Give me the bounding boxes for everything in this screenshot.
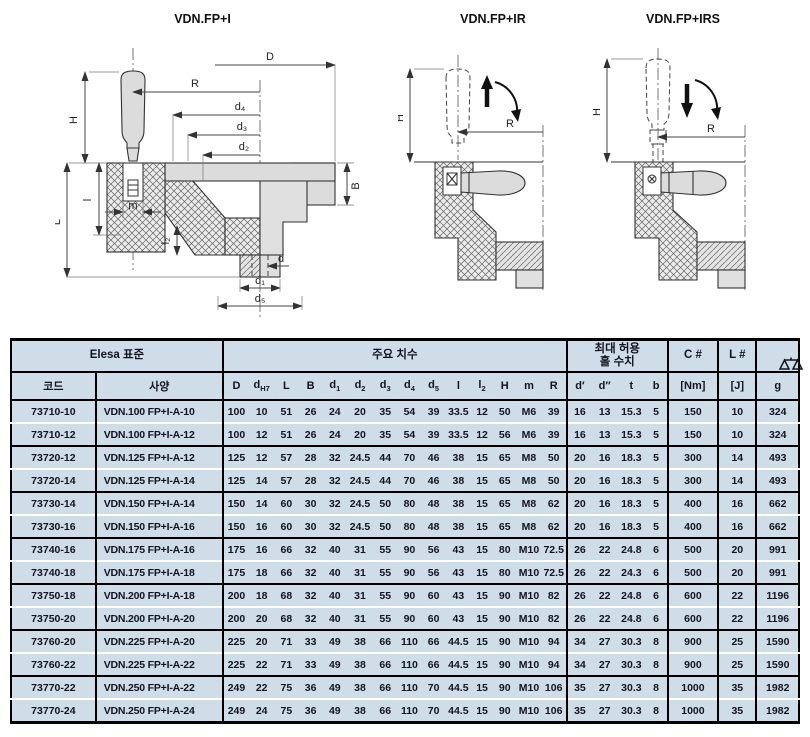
cell-B: 33: [299, 653, 323, 676]
cell-d3: 35: [373, 400, 397, 423]
cell-d5: 39: [422, 423, 446, 446]
cell-H: 90: [493, 630, 516, 653]
rotation-arc: [695, 80, 717, 112]
col-l2: l2: [471, 372, 493, 400]
cell-d2: 38: [347, 676, 373, 699]
cell-J: 35: [718, 699, 756, 723]
cell-d-prime: 20: [567, 469, 592, 492]
cell-J: 22: [718, 607, 756, 630]
cell-l2: 15: [471, 584, 493, 607]
cell-g: 1196: [756, 607, 799, 630]
hub-tube: [516, 270, 543, 288]
cell-d3: 44: [373, 469, 397, 492]
cell-d3: 55: [373, 538, 397, 561]
rotation-arc: [495, 82, 517, 114]
cell-R: 94: [542, 653, 567, 676]
cell-b: 5: [646, 400, 668, 423]
table-row: 73740-18VDN.175 FP+I-A-18175186632403155…: [11, 561, 799, 584]
cell-t: 18.3: [617, 492, 645, 515]
col-m: m: [516, 372, 541, 400]
cell-dH7: 16: [249, 515, 274, 538]
cell-d5: 39: [422, 400, 446, 423]
cell-B: 26: [299, 423, 323, 446]
col-dH7: dH7: [249, 372, 274, 400]
cell-d5: 46: [422, 446, 446, 469]
cell-l2: 15: [471, 630, 493, 653]
cell-dH7: 18: [249, 561, 274, 584]
cell-L: 75: [274, 676, 298, 699]
cell-d-dprime: 16: [592, 492, 617, 515]
cell-g: 493: [756, 469, 799, 492]
cell-d2: 31: [347, 561, 373, 584]
cell-t: 30.3: [617, 699, 645, 723]
cell-L: 66: [274, 561, 298, 584]
col-d2: d2: [347, 372, 373, 400]
cell-code: 73750-18: [11, 584, 96, 607]
header-max-hole: 최대 허용홀 수치: [567, 340, 668, 373]
dim-label-R: R: [191, 78, 199, 90]
cell-R: 50: [542, 446, 567, 469]
cell-D: 150: [223, 492, 249, 515]
cell-dH7: 20: [249, 607, 274, 630]
scale-icon: [778, 356, 799, 371]
cell-l: 38: [446, 515, 471, 538]
cell-d3: 66: [373, 653, 397, 676]
cell-Nm: 600: [668, 607, 718, 630]
col-g: g: [756, 372, 799, 400]
cell-d1: 49: [323, 676, 347, 699]
dim-label-B: B: [350, 182, 362, 189]
cell-Nm: 400: [668, 492, 718, 515]
dim-label-d3: d₃: [237, 121, 248, 133]
cell-dH7: 12: [249, 423, 274, 446]
cell-g: 324: [756, 400, 799, 423]
table-row: 73750-20VDN.200 FP+I-A-20200206832403155…: [11, 607, 799, 630]
cell-code: 73750-20: [11, 607, 96, 630]
cell-g: 991: [756, 561, 799, 584]
cell-d1: 49: [323, 653, 347, 676]
cell-d3: 66: [373, 676, 397, 699]
cell-d2: 20: [347, 423, 373, 446]
cell-B: 26: [299, 400, 323, 423]
cell-b: 5: [646, 492, 668, 515]
cell-d3: 44: [373, 446, 397, 469]
cell-t: 30.3: [617, 630, 645, 653]
cell-L: 60: [274, 515, 298, 538]
cell-D: 200: [223, 607, 249, 630]
cell-J: 14: [718, 446, 756, 469]
cell-b: 6: [646, 561, 668, 584]
cell-d-dprime: 16: [592, 469, 617, 492]
col-spec: 사양: [96, 372, 223, 400]
cell-d3: 55: [373, 561, 397, 584]
col-b: b: [646, 372, 668, 400]
cell-D: 100: [223, 400, 249, 423]
cell-dH7: 16: [249, 538, 274, 561]
dim-label-R: R: [506, 118, 514, 130]
cell-D: 125: [223, 446, 249, 469]
cell-B: 36: [299, 699, 323, 723]
col-t: t: [617, 372, 645, 400]
col-d4: d4: [397, 372, 421, 400]
cell-code: 73740-18: [11, 561, 96, 584]
cell-R: 106: [542, 699, 567, 723]
cell-spec: VDN.250 FP+I-A-22: [96, 676, 223, 699]
table-row: 73710-12VDN.100 FP+I-A-12100125126242035…: [11, 423, 799, 446]
cell-d2: 24.5: [347, 492, 373, 515]
cell-L: 71: [274, 653, 298, 676]
cell-J: 16: [718, 492, 756, 515]
cell-l2: 15: [471, 446, 493, 469]
cell-d1: 24: [323, 400, 347, 423]
cell-d-dprime: 16: [592, 446, 617, 469]
cell-m: M10: [516, 653, 541, 676]
cell-d2: 20: [347, 400, 373, 423]
cell-Nm: 300: [668, 469, 718, 492]
handle-folded-flat: [461, 171, 525, 195]
cell-b: 6: [646, 538, 668, 561]
cell-t: 15.3: [617, 400, 645, 423]
cell-d4: 80: [397, 515, 421, 538]
cell-d-prime: 16: [567, 423, 592, 446]
cell-d3: 50: [373, 492, 397, 515]
cell-d2: 31: [347, 538, 373, 561]
cell-t: 18.3: [617, 515, 645, 538]
catalog-page: VDN.FP+I VDN.FP+IR VDN.FP+IRS: [0, 0, 810, 737]
cell-B: 36: [299, 676, 323, 699]
dim-label-R: R: [707, 123, 715, 135]
cell-d5: 46: [422, 469, 446, 492]
cell-code: 73760-20: [11, 630, 96, 653]
cell-m: M6: [516, 400, 541, 423]
cell-code: 73740-16: [11, 538, 96, 561]
table-row: 73770-22VDN.250 FP+I-A-22249227536493866…: [11, 676, 799, 699]
cell-code: 73710-12: [11, 423, 96, 446]
cell-m: M10: [516, 584, 541, 607]
cell-code: 73770-24: [11, 699, 96, 723]
cell-d-prime: 20: [567, 446, 592, 469]
hub-boss-section: [496, 242, 543, 270]
cell-d1: 32: [323, 446, 347, 469]
cell-l2: 15: [471, 676, 493, 699]
drawing-vdn-fp-i: D R d₄ d₃ d₂ H L l m l₂ B d: [55, 30, 395, 330]
cell-spec: VDN.250 FP+I-A-24: [96, 699, 223, 723]
cell-l: 43: [446, 607, 471, 630]
col-d1: d1: [323, 372, 347, 400]
spec-table-wrap: Elesa 표준주요 치수최대 허용홀 수치C #L # 코드사양DdH7LBd…: [10, 338, 800, 724]
cell-dH7: 20: [249, 630, 274, 653]
cell-d4: 110: [397, 676, 421, 699]
hub-boss-section: [225, 218, 260, 255]
dim-label-H: H: [593, 108, 603, 116]
cell-b: 6: [646, 584, 668, 607]
cell-dH7: 22: [249, 653, 274, 676]
rotation-arrowhead: [711, 107, 721, 120]
cell-d-prime: 35: [567, 699, 592, 723]
cell-l: 38: [446, 446, 471, 469]
cell-d2: 38: [347, 653, 373, 676]
cell-R: 94: [542, 630, 567, 653]
cell-H: 90: [493, 653, 516, 676]
cell-t: 24.8: [617, 538, 645, 561]
cell-d2: 24.5: [347, 469, 373, 492]
cell-d4: 54: [397, 423, 421, 446]
cell-d3: 66: [373, 699, 397, 723]
cell-l: 33.5: [446, 423, 471, 446]
cell-m: M10: [516, 699, 541, 723]
cell-D: 175: [223, 561, 249, 584]
cell-J: 25: [718, 630, 756, 653]
cell-R: 50: [542, 469, 567, 492]
col-D: D: [223, 372, 249, 400]
cell-H: 65: [493, 469, 516, 492]
cell-d-prime: 34: [567, 630, 592, 653]
cell-l: 43: [446, 561, 471, 584]
cell-dH7: 24: [249, 699, 274, 723]
fold-down-arrow: [681, 103, 693, 118]
cell-L: 66: [274, 538, 298, 561]
cell-H: 90: [493, 607, 516, 630]
cell-J: 25: [718, 653, 756, 676]
table-row: 73760-22VDN.225 FP+I-A-22225227133493866…: [11, 653, 799, 676]
cell-R: 82: [542, 584, 567, 607]
cell-g: 1982: [756, 699, 799, 723]
cell-b: 8: [646, 699, 668, 723]
cell-d4: 110: [397, 653, 421, 676]
cell-d4: 90: [397, 538, 421, 561]
cell-D: 225: [223, 653, 249, 676]
cell-D: 249: [223, 699, 249, 723]
cell-d5: 70: [422, 699, 446, 723]
cell-spec: VDN.150 FP+I-A-14: [96, 492, 223, 515]
spec-table: Elesa 표준주요 치수최대 허용홀 수치C #L # 코드사양DdH7LBd…: [10, 338, 800, 724]
table-row: 73730-16VDN.150 FP+I-A-161501660303224.5…: [11, 515, 799, 538]
cell-L: 57: [274, 446, 298, 469]
header-group-row: Elesa 표준주요 치수최대 허용홀 수치C #L #: [11, 340, 799, 373]
cell-l: 38: [446, 469, 471, 492]
cell-d5: 56: [422, 561, 446, 584]
dim-label-H: H: [68, 116, 80, 124]
cell-d1: 49: [323, 630, 347, 653]
drawing-vdn-fp-ir: H R: [398, 40, 588, 295]
dim-label-L: L: [55, 219, 63, 225]
col-Nm: [Nm]: [668, 372, 718, 400]
cell-b: 5: [646, 446, 668, 469]
cell-L: 68: [274, 584, 298, 607]
dim-label-d4: d₄: [235, 101, 246, 113]
hub-boss-section: [697, 242, 745, 270]
col-J: [J]: [718, 372, 756, 400]
cell-d5: 48: [422, 515, 446, 538]
cell-b: 5: [646, 469, 668, 492]
fold-up-arrow: [481, 75, 493, 89]
cell-Nm: 300: [668, 446, 718, 469]
cell-B: 32: [299, 607, 323, 630]
cell-m: M6: [516, 423, 541, 446]
cell-dH7: 22: [249, 676, 274, 699]
table-row: 73760-20VDN.225 FP+I-A-20225207133493866…: [11, 630, 799, 653]
col-code: 코드: [11, 372, 96, 400]
cell-J: 16: [718, 515, 756, 538]
cell-B: 30: [299, 515, 323, 538]
cell-dH7: 18: [249, 584, 274, 607]
cell-l2: 15: [471, 653, 493, 676]
cell-g: 324: [756, 423, 799, 446]
cell-L: 60: [274, 492, 298, 515]
cell-g: 1590: [756, 653, 799, 676]
col-d-prime: d′: [567, 372, 592, 400]
spoke-web-section: [165, 181, 225, 255]
cell-d-dprime: 27: [592, 653, 617, 676]
cell-t: 30.3: [617, 653, 645, 676]
cell-spec: VDN.100 FP+I-A-12: [96, 423, 223, 446]
cell-d5: 48: [422, 492, 446, 515]
cell-g: 991: [756, 538, 799, 561]
hub-tube: [718, 270, 745, 288]
cell-l2: 15: [471, 469, 493, 492]
cell-spec: VDN.225 FP+I-A-22: [96, 653, 223, 676]
cell-H: 65: [493, 515, 516, 538]
dim-label-d5: d₅: [255, 293, 266, 305]
cell-B: 33: [299, 630, 323, 653]
dim-label-H: H: [398, 114, 406, 122]
cell-B: 28: [299, 446, 323, 469]
hub-tube-section: [240, 255, 260, 277]
cell-spec: VDN.125 FP+I-A-14: [96, 469, 223, 492]
hub-far-side: [260, 181, 307, 255]
cell-b: 6: [646, 607, 668, 630]
cell-code: 73730-16: [11, 515, 96, 538]
cell-l2: 12: [471, 400, 493, 423]
cell-d1: 40: [323, 538, 347, 561]
cell-J: 22: [718, 584, 756, 607]
cell-R: 82: [542, 607, 567, 630]
cell-D: 200: [223, 584, 249, 607]
revolving-handle: [121, 71, 145, 148]
cell-d-prime: 35: [567, 676, 592, 699]
cell-d3: 66: [373, 630, 397, 653]
cell-b: 8: [646, 630, 668, 653]
cell-d4: 90: [397, 561, 421, 584]
cell-d4: 54: [397, 400, 421, 423]
col-B: B: [299, 372, 323, 400]
cell-B: 32: [299, 538, 323, 561]
cell-D: 125: [223, 469, 249, 492]
cell-l2: 15: [471, 515, 493, 538]
dim-label-m: m: [128, 200, 137, 212]
cell-R: 39: [542, 400, 567, 423]
cell-code: 73760-22: [11, 653, 96, 676]
cell-d2: 31: [347, 607, 373, 630]
cell-d2: 24.5: [347, 515, 373, 538]
header-column-row: 코드사양DdH7LBd1d2d3d4d5ll2HmRd′d″tb[Nm][J]g: [11, 372, 799, 400]
cell-B: 32: [299, 584, 323, 607]
cell-L: 57: [274, 469, 298, 492]
cell-l2: 12: [471, 423, 493, 446]
table-row: 73750-18VDN.200 FP+I-A-18200186832403155…: [11, 584, 799, 607]
cell-d4: 70: [397, 446, 421, 469]
cell-d-dprime: 22: [592, 561, 617, 584]
cell-d-dprime: 27: [592, 676, 617, 699]
cell-l: 44.5: [446, 630, 471, 653]
cell-J: 35: [718, 676, 756, 699]
cell-dH7: 10: [249, 400, 274, 423]
cell-d1: 32: [323, 515, 347, 538]
cell-Nm: 1000: [668, 699, 718, 723]
cell-D: 175: [223, 538, 249, 561]
cell-H: 65: [493, 446, 516, 469]
cell-g: 1590: [756, 630, 799, 653]
cell-dH7: 12: [249, 446, 274, 469]
cell-code: 73770-22: [11, 676, 96, 699]
col-d5: d5: [422, 372, 446, 400]
cell-d-dprime: 22: [592, 607, 617, 630]
cell-d-prime: 26: [567, 584, 592, 607]
cell-d5: 60: [422, 607, 446, 630]
cell-R: 106: [542, 676, 567, 699]
cell-m: M8: [516, 446, 541, 469]
cell-d3: 55: [373, 607, 397, 630]
cell-d1: 32: [323, 492, 347, 515]
cell-b: 5: [646, 515, 668, 538]
cell-l: 44.5: [446, 699, 471, 723]
handle-neck: [127, 148, 139, 161]
cell-Nm: 900: [668, 653, 718, 676]
cell-code: 73720-12: [11, 446, 96, 469]
col-L: L: [274, 372, 298, 400]
cell-t: 24.3: [617, 561, 645, 584]
header-c: C #: [668, 340, 718, 373]
cell-Nm: 150: [668, 423, 718, 446]
cell-Nm: 400: [668, 515, 718, 538]
cell-g: 493: [756, 446, 799, 469]
wheel-top-plate: [165, 163, 335, 181]
cell-t: 24.8: [617, 607, 645, 630]
cell-D: 150: [223, 515, 249, 538]
cell-H: 90: [493, 584, 516, 607]
cell-d3: 50: [373, 515, 397, 538]
dim-label-D: D: [266, 51, 274, 63]
cell-d1: 40: [323, 607, 347, 630]
cell-B: 32: [299, 561, 323, 584]
cell-t: 18.3: [617, 446, 645, 469]
cell-d-prime: 20: [567, 492, 592, 515]
cell-spec: VDN.150 FP+I-A-16: [96, 515, 223, 538]
dim-label-l: l: [82, 199, 94, 201]
cell-b: 8: [646, 676, 668, 699]
cell-l2: 15: [471, 561, 493, 584]
cell-L: 71: [274, 630, 298, 653]
cell-L: 51: [274, 400, 298, 423]
table-row: 73730-14VDN.150 FP+I-A-141501460303224.5…: [11, 492, 799, 515]
cell-J: 14: [718, 469, 756, 492]
cell-d-prime: 20: [567, 515, 592, 538]
cell-l: 44.5: [446, 676, 471, 699]
cell-D: 100: [223, 423, 249, 446]
cell-d2: 24.5: [347, 446, 373, 469]
dim-label-d2: d₂: [239, 141, 249, 153]
cell-m: M10: [516, 607, 541, 630]
cell-l: 43: [446, 584, 471, 607]
drawing-vdn-fp-irs: H R: [593, 40, 805, 295]
cell-L: 75: [274, 699, 298, 723]
cell-Nm: 600: [668, 584, 718, 607]
cell-d-dprime: 22: [592, 584, 617, 607]
cell-d-prime: 34: [567, 653, 592, 676]
cell-d5: 56: [422, 538, 446, 561]
cell-H: 56: [493, 423, 516, 446]
cell-L: 51: [274, 423, 298, 446]
